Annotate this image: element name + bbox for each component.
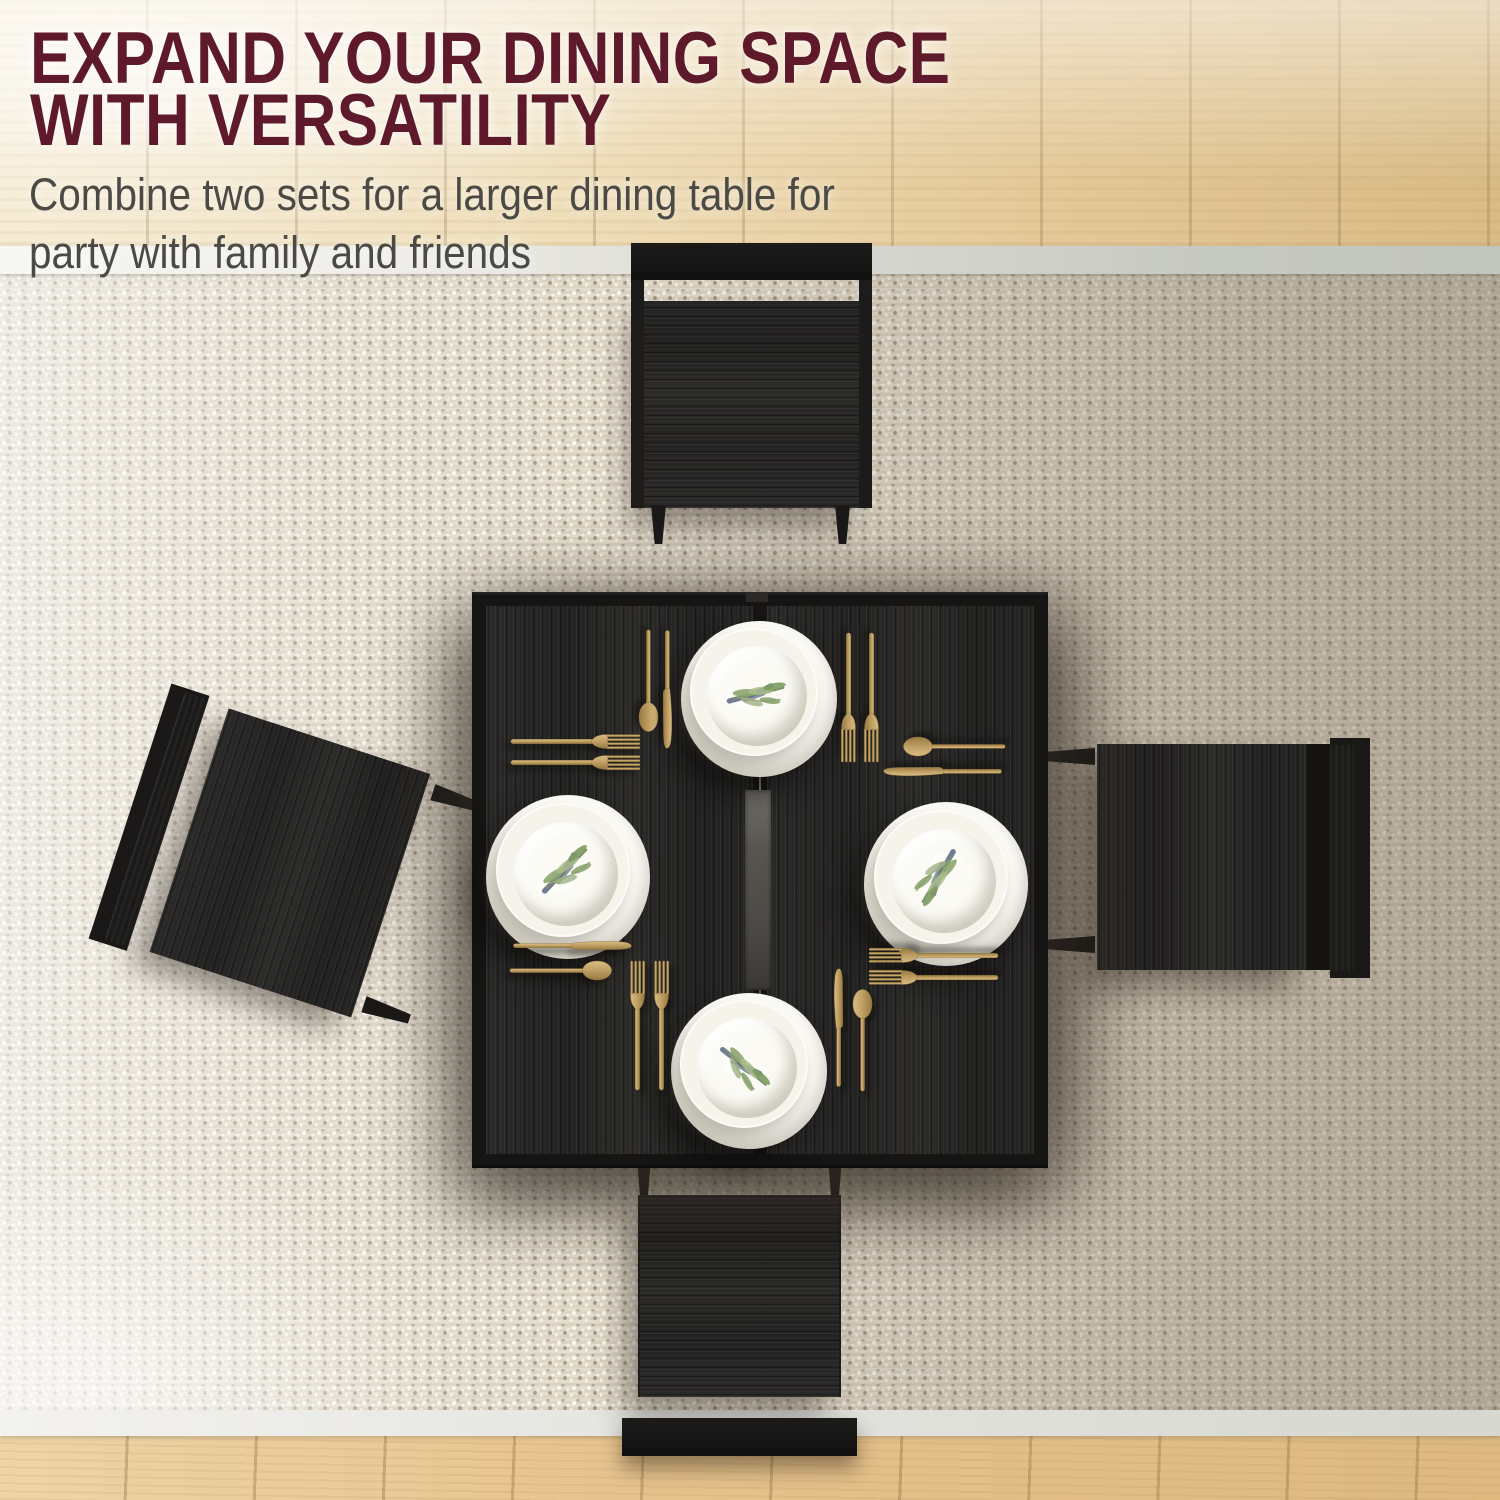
- olive-branch-icon: [692, 1012, 795, 1115]
- fork-icon: [862, 630, 881, 765]
- table-seam-tab: [746, 592, 768, 602]
- knife-icon: [510, 938, 635, 953]
- plate-icon: [874, 810, 1009, 945]
- headline: EXPAND YOUR DINING SPACE WITH VERSATILIT…: [30, 28, 965, 152]
- headline-line-2: WITH VERSATILITY: [30, 90, 965, 152]
- chair-right-frame: [1354, 738, 1370, 978]
- chair-bottom-backrest: [622, 1418, 857, 1456]
- plate-icon: [680, 1000, 808, 1128]
- olive-branch-icon: [696, 634, 812, 750]
- plate-icon: [496, 803, 631, 938]
- place-setting-plate-east: [864, 802, 1028, 966]
- fork-icon: [652, 958, 671, 1093]
- fork-icon: [508, 753, 643, 772]
- chair-left-leg: [361, 996, 412, 1027]
- chair-right-leg: [1047, 748, 1095, 765]
- olive-branch-icon: [882, 818, 999, 935]
- chair-top-left-rail: [631, 280, 644, 508]
- subheadline-line-1: Combine two sets for a larger dining tab…: [29, 166, 1064, 224]
- place-setting-plate-north: [681, 621, 837, 777]
- spoon-icon: [852, 988, 873, 1093]
- place-setting-plate-south: [671, 993, 827, 1149]
- place-setting-plate-west: [486, 795, 650, 959]
- chair-right-frame-arm: [1330, 738, 1370, 745]
- spoon-icon: [902, 736, 1007, 757]
- chair-right-seat-shadow-gap: [1307, 744, 1330, 970]
- fork-icon: [839, 630, 858, 765]
- knife-icon: [880, 764, 1005, 779]
- fork-icon: [628, 958, 647, 1093]
- chair-top: [631, 243, 872, 545]
- chair-left-seat: [149, 708, 430, 1017]
- knife-icon: [831, 965, 846, 1090]
- chair-top-seat: [644, 301, 859, 508]
- table-seam-gap: [745, 790, 771, 990]
- chair-bottom: [622, 1150, 857, 1456]
- fork-icon: [866, 946, 1001, 965]
- chair-right-leg: [1047, 936, 1095, 953]
- chair-right-seat: [1097, 744, 1307, 970]
- spoon-icon: [508, 960, 613, 981]
- spoon-icon: [638, 628, 659, 733]
- subheadline: Combine two sets for a larger dining tab…: [29, 166, 1064, 282]
- chair-bottom-seat: [640, 1195, 839, 1397]
- fork-icon: [508, 732, 643, 751]
- chair-top-leg: [832, 506, 853, 544]
- knife-icon: [660, 627, 675, 752]
- chair-right: [1047, 738, 1370, 978]
- chair-right-backrest: [1330, 742, 1354, 974]
- plate-icon: [690, 628, 818, 756]
- fork-icon: [866, 968, 1001, 987]
- chair-right-frame-arm: [1330, 971, 1370, 978]
- olive-branch-icon: [513, 820, 614, 921]
- product-marketing-image: EXPAND YOUR DINING SPACE WITH VERSATILIT…: [0, 0, 1500, 1500]
- chair-top-right-rail: [859, 280, 872, 508]
- chair-top-leg: [648, 506, 669, 544]
- subheadline-line-2: party with family and friends: [29, 224, 1064, 282]
